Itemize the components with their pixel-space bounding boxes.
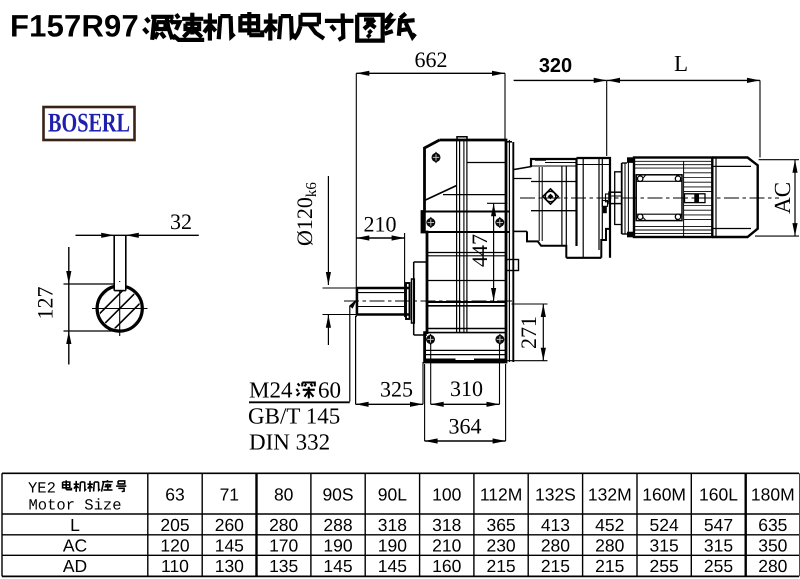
- svg-text:60: 60: [318, 378, 341, 403]
- svg-text:190: 190: [378, 535, 407, 555]
- svg-text:280: 280: [595, 535, 624, 555]
- svg-text:YE2: YE2: [28, 480, 56, 498]
- svg-text:130: 130: [215, 556, 244, 576]
- svg-text:BOSERL: BOSERL: [48, 108, 130, 138]
- svg-text:GB/T 145: GB/T 145: [248, 404, 340, 429]
- svg-text:365: 365: [486, 515, 515, 535]
- svg-text:210: 210: [364, 212, 397, 237]
- svg-text:160: 160: [432, 556, 461, 576]
- svg-text:413: 413: [541, 515, 570, 535]
- svg-text:71: 71: [220, 485, 239, 505]
- svg-text:215: 215: [486, 556, 515, 576]
- svg-text:271: 271: [516, 316, 541, 349]
- svg-text:205: 205: [160, 515, 189, 535]
- svg-text:AC: AC: [770, 182, 795, 214]
- svg-text:90S: 90S: [322, 485, 353, 505]
- svg-text:L: L: [70, 515, 80, 535]
- svg-text:452: 452: [595, 515, 624, 535]
- svg-text:160M: 160M: [642, 485, 686, 505]
- svg-text:180M: 180M: [751, 485, 795, 505]
- svg-text:120: 120: [160, 535, 189, 555]
- svg-text:127: 127: [33, 287, 58, 320]
- svg-text:145: 145: [378, 556, 407, 576]
- svg-text:315: 315: [650, 535, 679, 555]
- svg-text:447: 447: [467, 234, 492, 267]
- svg-text:AC: AC: [63, 535, 87, 555]
- svg-text:635: 635: [758, 515, 787, 535]
- svg-text:210: 210: [432, 535, 461, 555]
- svg-text:63: 63: [165, 485, 184, 505]
- svg-text:662: 662: [415, 47, 448, 72]
- svg-text:145: 145: [215, 535, 244, 555]
- svg-text:32: 32: [170, 209, 192, 234]
- svg-text:190: 190: [323, 535, 352, 555]
- svg-text:132M: 132M: [588, 485, 632, 505]
- svg-text:215: 215: [541, 556, 570, 576]
- svg-text:318: 318: [432, 515, 461, 535]
- svg-text:110: 110: [161, 556, 189, 576]
- svg-text:Motor Size: Motor Size: [28, 497, 121, 515]
- svg-text:320: 320: [539, 55, 572, 77]
- svg-text:288: 288: [323, 515, 352, 535]
- svg-text:135: 135: [269, 556, 298, 576]
- svg-text:AD: AD: [63, 556, 87, 576]
- svg-text:230: 230: [486, 535, 515, 555]
- svg-text:524: 524: [650, 515, 679, 535]
- svg-text:F157R97: F157R97: [10, 9, 139, 44]
- svg-text:280: 280: [541, 535, 570, 555]
- svg-text:112M: 112M: [480, 485, 522, 505]
- svg-text:80: 80: [274, 485, 294, 505]
- svg-text:170: 170: [269, 535, 298, 555]
- svg-text:M24: M24: [249, 378, 293, 403]
- svg-text:325: 325: [380, 377, 413, 402]
- svg-text:255: 255: [650, 556, 679, 576]
- svg-text:L: L: [674, 51, 688, 76]
- svg-text:350: 350: [758, 535, 787, 555]
- svg-text:132S: 132S: [535, 485, 576, 505]
- svg-text:318: 318: [378, 515, 407, 535]
- svg-text:310: 310: [450, 376, 483, 401]
- svg-text:DIN 332: DIN 332: [249, 430, 330, 455]
- svg-text:100: 100: [432, 485, 461, 505]
- svg-text:315: 315: [704, 535, 733, 555]
- svg-text:255: 255: [704, 556, 733, 576]
- svg-text:364: 364: [449, 414, 482, 439]
- svg-text:160L: 160L: [699, 485, 738, 505]
- svg-text:547: 547: [704, 515, 733, 535]
- svg-text:260: 260: [215, 515, 244, 535]
- svg-text:280: 280: [758, 556, 787, 576]
- svg-text:90L: 90L: [378, 485, 407, 505]
- svg-text:215: 215: [595, 556, 624, 576]
- svg-text:280: 280: [269, 515, 298, 535]
- svg-text:145: 145: [323, 556, 352, 576]
